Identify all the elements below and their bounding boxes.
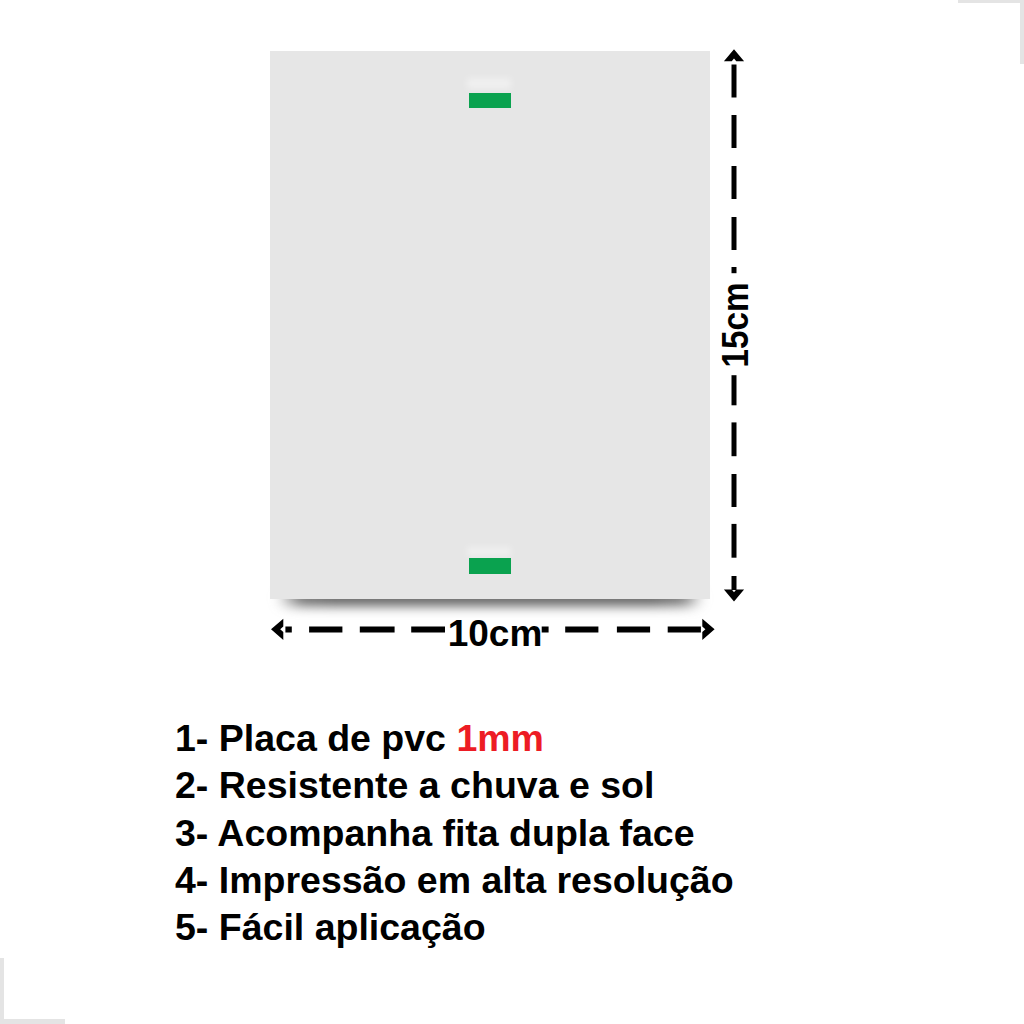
svg-text:10cm: 10cm <box>448 613 543 654</box>
svg-text:15cm: 15cm <box>715 282 756 367</box>
